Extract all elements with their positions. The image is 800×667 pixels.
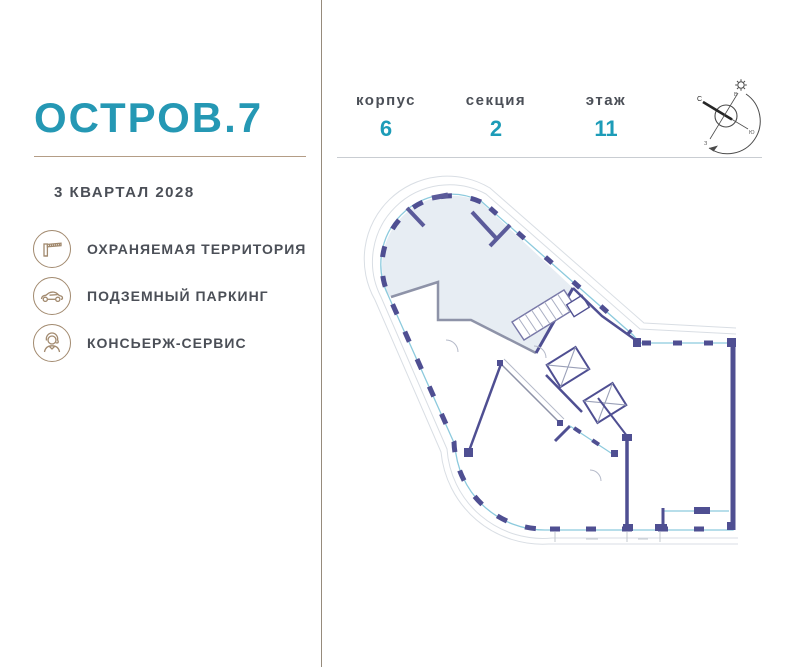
stat-label: этаж — [557, 92, 655, 109]
sun-icon — [735, 79, 747, 91]
completion-date: 3 КВАРТАЛ 2028 — [54, 184, 195, 201]
barrier-gate-icon — [33, 230, 71, 268]
stat-value: 6 — [337, 116, 435, 142]
concierge-icon — [33, 324, 71, 362]
rotation-arrowhead — [709, 146, 718, 152]
compass-rose: С В Ю З — [694, 72, 766, 169]
compass-west-label: З — [704, 141, 708, 147]
feature-guarded-territory: ОХРАНЯЕМАЯ ТЕРРИТОРИЯ — [33, 230, 306, 268]
logo-underline — [34, 156, 306, 157]
feature-label: КОНСЬЕРЖ-СЕРВИС — [87, 335, 247, 351]
feature-list: ОХРАНЯЕМАЯ ТЕРРИТОРИЯ ПОДЗЕМНЫЙ ПАРКИНГ … — [33, 230, 306, 371]
window-bay — [555, 426, 618, 457]
car-icon — [33, 277, 71, 315]
feature-label: ПОДЗЕМНЫЙ ПАРКИНГ — [87, 288, 269, 304]
stat-floor: этаж 11 — [557, 92, 655, 142]
floor-plan — [350, 170, 770, 573]
feature-underground-parking: ПОДЗЕМНЫЙ ПАРКИНГ — [33, 277, 306, 315]
project-logo: ОСТРОВ.7 — [34, 94, 314, 142]
plan-header: корпус 6 секция 2 этаж 11 — [337, 92, 667, 142]
compass-south-label: Ю — [749, 130, 755, 136]
stat-section: секция 2 — [447, 92, 545, 142]
stat-label: секция — [447, 92, 545, 109]
feature-label: ОХРАНЯЕМАЯ ТЕРРИТОРИЯ — [87, 241, 306, 257]
plan-walls-exterior — [623, 338, 736, 531]
stat-value: 2 — [447, 116, 545, 142]
stat-building: корпус 6 — [337, 92, 435, 142]
stat-value: 11 — [557, 116, 655, 142]
panel-divider — [321, 0, 322, 667]
stat-label: корпус — [337, 92, 435, 109]
compass-east-label: В — [734, 92, 738, 98]
dimension-ticks — [555, 532, 660, 542]
rotation-arrow — [709, 94, 760, 154]
compass-north-label: С — [697, 96, 702, 103]
feature-concierge-service: КОНСЬЕРЖ-СЕРВИС — [33, 324, 306, 362]
